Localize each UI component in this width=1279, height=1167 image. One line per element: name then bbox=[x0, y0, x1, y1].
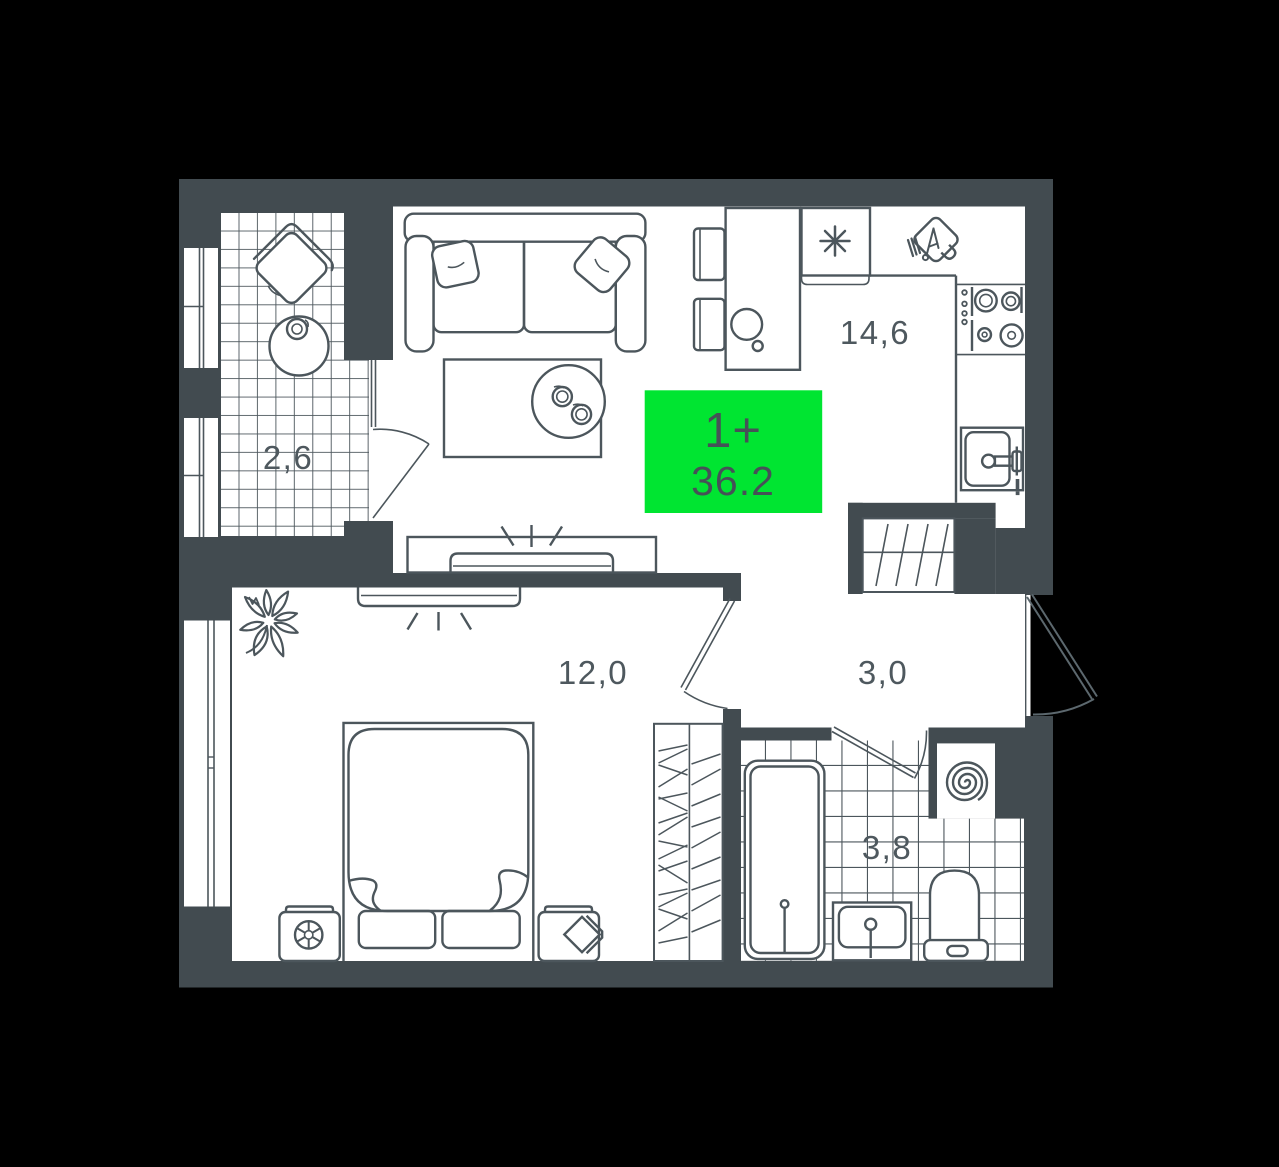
svg-text:3,8: 3,8 bbox=[862, 829, 912, 866]
svg-text:1+: 1+ bbox=[704, 404, 762, 458]
svg-text:14,6: 14,6 bbox=[840, 314, 910, 351]
svg-text:36.2: 36.2 bbox=[691, 458, 775, 504]
svg-text:2,6: 2,6 bbox=[263, 439, 313, 476]
svg-text:12,0: 12,0 bbox=[558, 654, 628, 691]
svg-text:3,0: 3,0 bbox=[858, 654, 908, 691]
